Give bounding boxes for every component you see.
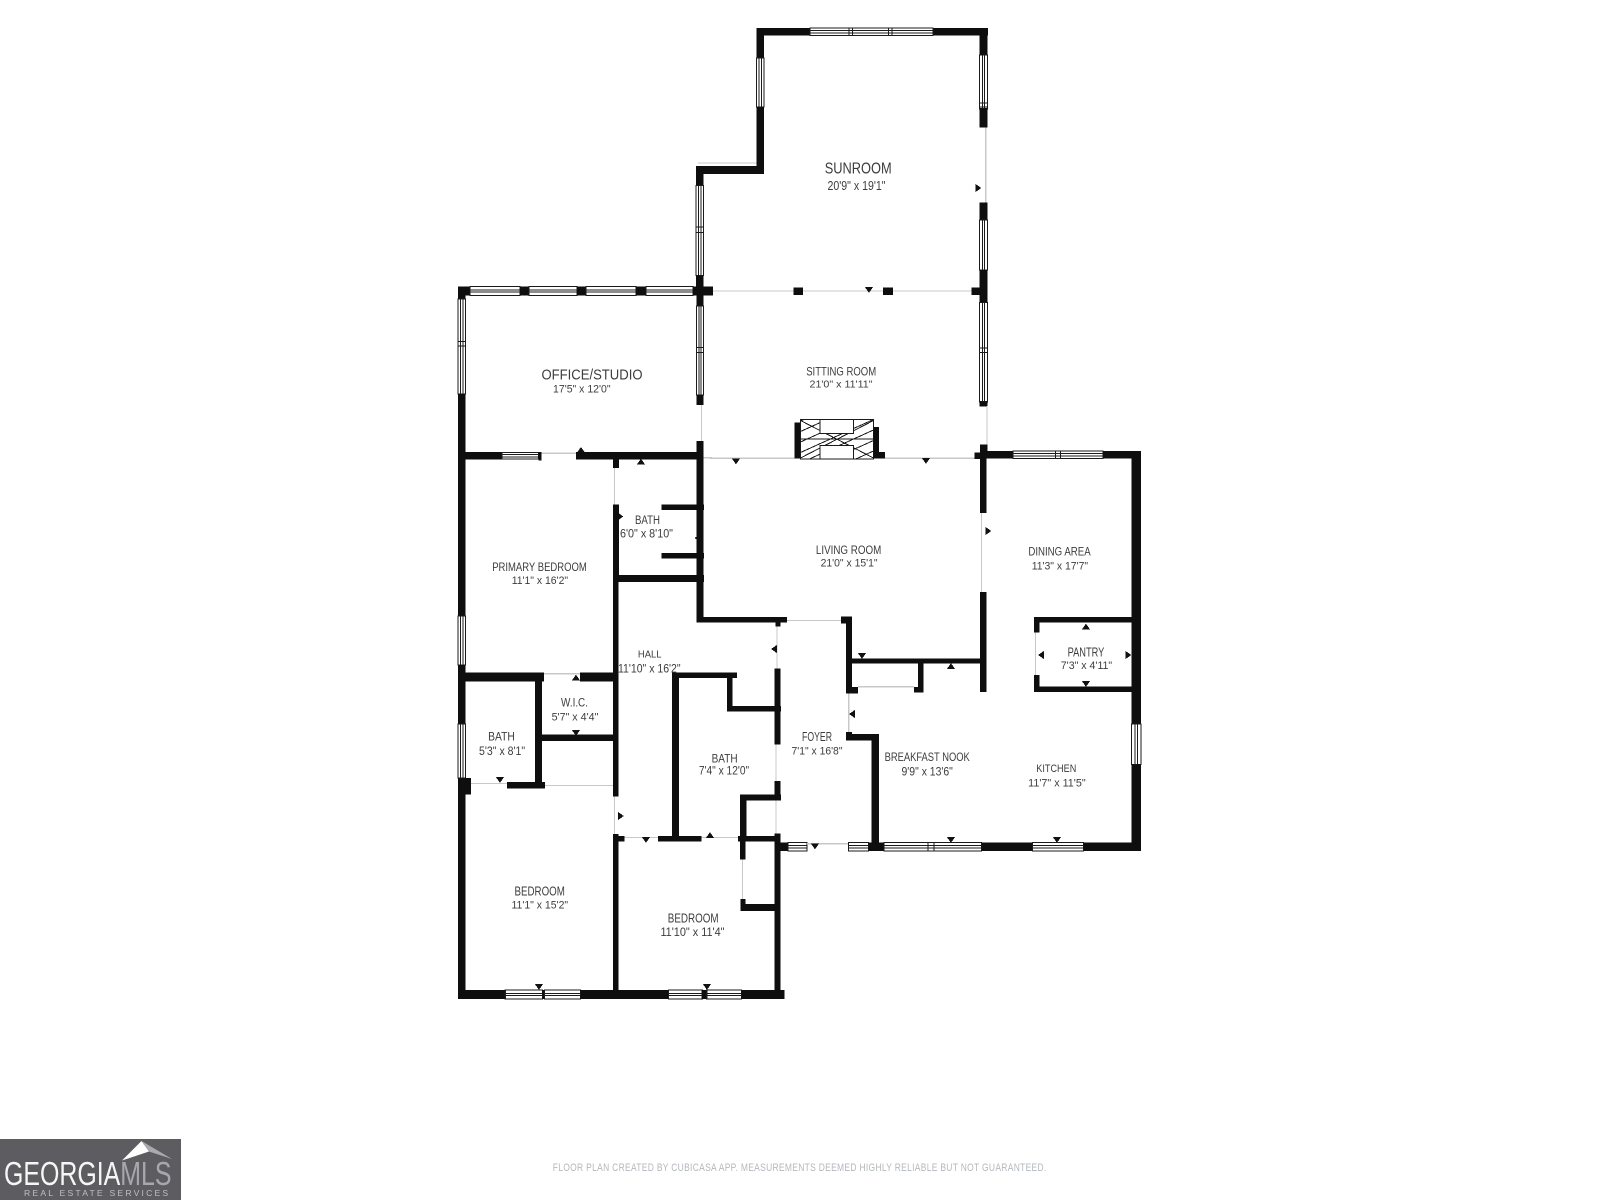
svg-text:W.I.C.: W.I.C.: [561, 698, 588, 710]
svg-text:11'7" x 11'5": 11'7" x 11'5": [1028, 777, 1086, 789]
svg-text:DINING AREA: DINING AREA: [1028, 547, 1091, 559]
svg-text:LIVING ROOM: LIVING ROOM: [816, 543, 881, 557]
svg-text:11'1" x 16'2": 11'1" x 16'2": [512, 575, 568, 587]
svg-text:17'5" x 12'0": 17'5" x 12'0": [553, 383, 611, 395]
svg-text:BREAKFAST NOOK: BREAKFAST NOOK: [885, 750, 970, 764]
svg-text:HALL: HALL: [638, 649, 662, 660]
svg-text:SITTING ROOM: SITTING ROOM: [806, 364, 876, 378]
svg-text:11'1" x 15'2": 11'1" x 15'2": [512, 900, 569, 912]
svg-text:20'9" x 19'1": 20'9" x 19'1": [828, 178, 886, 193]
svg-text:7'3" x 4'11": 7'3" x 4'11": [1061, 660, 1112, 672]
svg-text:21'0" x 15'1": 21'0" x 15'1": [821, 558, 878, 570]
svg-text:6'0" x 8'10": 6'0" x 8'10": [620, 526, 673, 540]
svg-text:7'1" x 16'8": 7'1" x 16'8": [792, 745, 843, 757]
svg-text:BATH: BATH: [488, 730, 515, 744]
svg-text:BEDROOM: BEDROOM: [515, 884, 565, 898]
svg-text:BATH: BATH: [712, 751, 738, 765]
svg-text:OFFICE/STUDIO: OFFICE/STUDIO: [542, 368, 643, 384]
svg-text:KITCHEN: KITCHEN: [1036, 763, 1076, 775]
svg-text:11'10" x 16'2": 11'10" x 16'2": [618, 662, 681, 676]
svg-text:11'3" x 17'7": 11'3" x 17'7": [1032, 560, 1089, 572]
svg-text:21'0" x 11'11": 21'0" x 11'11": [810, 380, 873, 391]
svg-text:BEDROOM: BEDROOM: [668, 910, 719, 925]
svg-text:SUNROOM: SUNROOM: [825, 161, 892, 178]
svg-text:PANTRY: PANTRY: [1068, 645, 1105, 659]
svg-text:BATH: BATH: [635, 513, 660, 527]
svg-text:FOYER: FOYER: [802, 730, 832, 744]
svg-text:5'7" x 4'4": 5'7" x 4'4": [552, 712, 599, 724]
svg-text:9'9" x 13'6": 9'9" x 13'6": [902, 766, 953, 778]
svg-text:7'4" x 12'0": 7'4" x 12'0": [699, 766, 749, 778]
svg-text:5'3" x 8'1": 5'3" x 8'1": [479, 744, 525, 758]
svg-text:11'10" x 11'4": 11'10" x 11'4": [660, 925, 724, 939]
svg-text:PRIMARY BEDROOM: PRIMARY BEDROOM: [492, 560, 587, 574]
